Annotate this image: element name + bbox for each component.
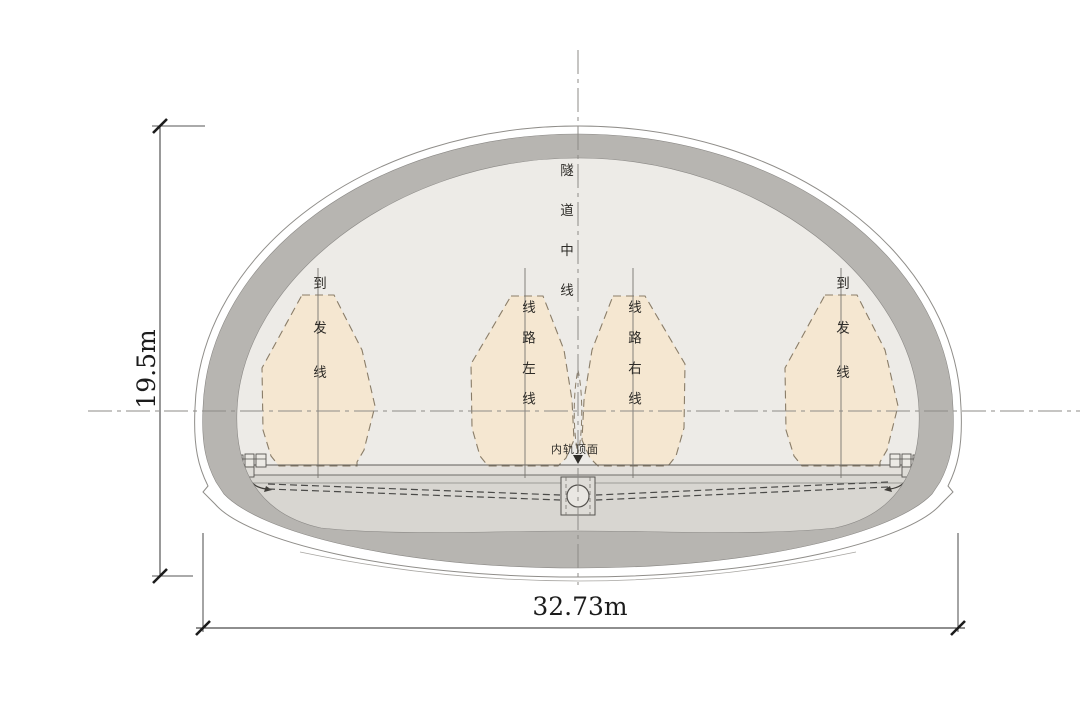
envelope-label-main-left: 线路左线 [517, 300, 537, 422]
width-dimension-text: 32.73m [500, 593, 660, 621]
tunnel-cross-section-drawing: 隧道中线 到发线 线路左线 线路右线 到发线 内轨顶面 19.5m 32.73m [0, 0, 1085, 711]
rail-top-label: 内轨顶面 [551, 441, 599, 457]
tunnel-centerline-label: 隧道中线 [555, 163, 575, 323]
envelope-label-siding-right: 到发线 [831, 276, 851, 410]
height-dimension-text: 19.5m [133, 309, 161, 429]
envelope-label-siding-left: 到发线 [308, 276, 328, 410]
envelope-label-main-right: 线路右线 [623, 300, 643, 422]
